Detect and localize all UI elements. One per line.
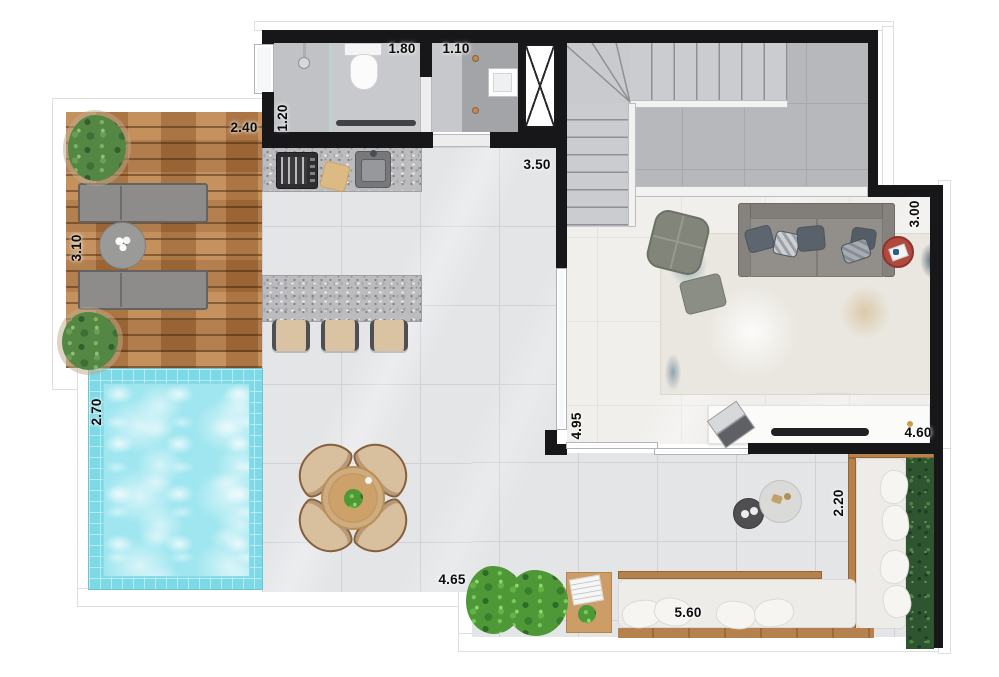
glass-corner-post (545, 444, 567, 455)
laptop-icon (707, 401, 755, 449)
living-wall-bottom (748, 443, 943, 454)
sconce-light-icon (472, 107, 479, 114)
tray-item-icon (771, 494, 783, 505)
laundry-floor (432, 43, 518, 132)
red-tray-table (882, 236, 914, 268)
deck-side-table (99, 222, 146, 269)
laundry-door-opening (433, 134, 490, 147)
towel-bar (336, 120, 416, 126)
sconce-light-icon (472, 55, 479, 62)
hedge-planter (906, 453, 934, 649)
cooktop-icon (276, 152, 318, 189)
dimension-label: 2.40 (224, 121, 264, 135)
toilet-bowl (350, 54, 378, 90)
stairs-handrail-lower (628, 103, 636, 227)
magazine-icon (569, 575, 604, 606)
stairwell-wall-right (868, 30, 878, 187)
bathroom-window (254, 44, 274, 94)
sun-lounger (78, 183, 208, 223)
stairs-handrail-upper (630, 100, 788, 108)
lounger-backrest-seam (120, 273, 122, 307)
bench-wood-back (618, 571, 822, 579)
stairwell-wall-left (556, 30, 567, 268)
sun-lounger (78, 270, 208, 310)
tray-item-icon (784, 493, 791, 500)
cooktop-grill (281, 157, 307, 184)
terrace-wall-right (934, 453, 943, 648)
kitchen-sink-icon (355, 151, 391, 188)
coffee-table-glass (759, 480, 802, 523)
sofa-pillow (796, 225, 826, 252)
dimension-label: 1.10 (436, 42, 476, 56)
dimension-label: 2.20 (832, 483, 846, 523)
shower-glass-partition (329, 43, 331, 132)
tv-console (708, 405, 930, 444)
tv-icon (771, 428, 869, 436)
stairs-winder (567, 38, 630, 103)
bar-stool (321, 320, 359, 351)
floor-plan: 2.40 3.10 1.20 1.80 1.10 3.50 3.00 2.70 … (0, 0, 999, 677)
cooktop-knobs (310, 158, 315, 183)
flower-vase-icon (114, 235, 132, 253)
terrace-side-table (566, 572, 612, 633)
stair-balustrade (635, 186, 868, 197)
sliding-door-panel (654, 448, 750, 455)
stairs-upper-flight (630, 38, 788, 103)
dimension-label: 5.60 (668, 606, 708, 620)
dimension-label: 3.00 (908, 194, 922, 234)
dimension-label: 4.95 (570, 406, 584, 446)
lounger-backrest-seam (120, 186, 122, 220)
exterior-wall-top (262, 30, 878, 43)
dimension-label: 3.50 (517, 158, 557, 172)
glass-partition (556, 268, 567, 430)
faucet-icon (370, 150, 377, 157)
bar-stool (370, 320, 408, 351)
pool-water (103, 383, 250, 577)
stairs-lower-flight (567, 103, 628, 227)
table-dish-icon (365, 477, 372, 484)
laundry-basin (488, 68, 518, 97)
living-wall-right (930, 185, 943, 453)
duct-shaft (524, 44, 556, 128)
pool (88, 368, 263, 590)
cup-icon (741, 510, 749, 518)
bathroom-floor (273, 43, 420, 132)
laundry-basin-bowl (493, 73, 512, 92)
stair-right-outline (882, 26, 894, 191)
magazine-cover-art (893, 249, 899, 255)
dimension-label: 3.10 (70, 228, 84, 268)
small-plant-icon (578, 605, 596, 623)
dimension-label: 1.80 (382, 42, 422, 56)
dimension-label: 1.20 (276, 98, 290, 138)
sink-basin (361, 159, 386, 182)
dimension-label: 4.65 (432, 573, 472, 587)
bathroom-door-opening (420, 77, 432, 132)
cup-icon (750, 507, 758, 515)
kitchen-island (262, 275, 422, 322)
dimension-label: 4.60 (898, 426, 938, 440)
dimension-label: 2.70 (90, 392, 104, 432)
bench-wood-platform (618, 628, 874, 638)
shower-head-icon (298, 57, 310, 69)
bar-stool (272, 320, 310, 351)
